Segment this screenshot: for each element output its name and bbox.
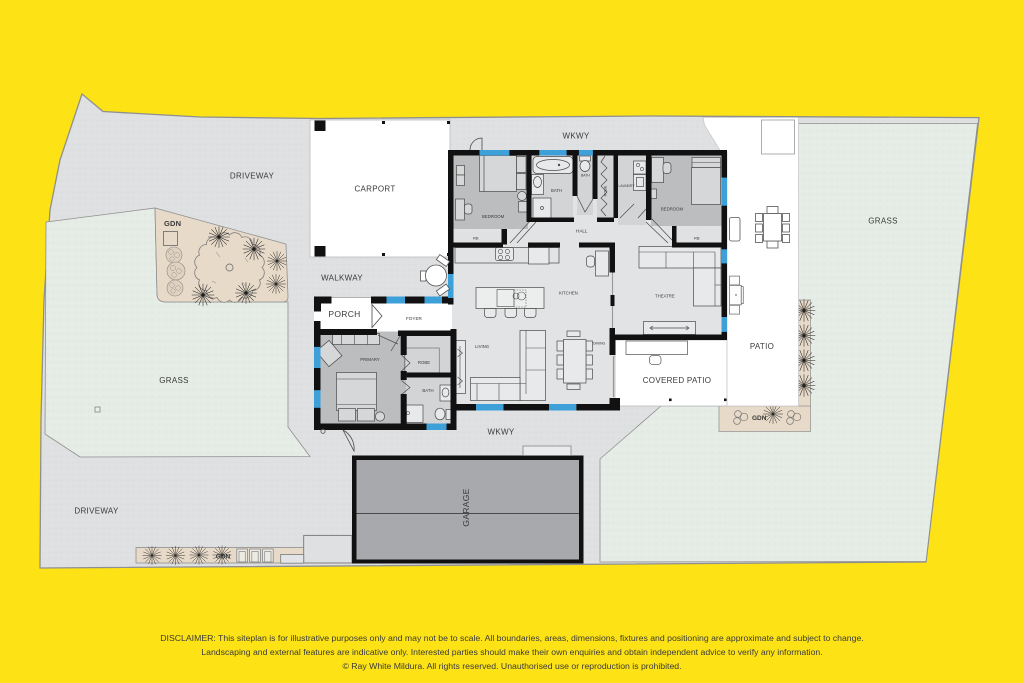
svg-text:GDN: GDN <box>752 415 767 422</box>
svg-text:GDN: GDN <box>164 219 181 228</box>
svg-text:RB: RB <box>694 236 700 241</box>
svg-text:ROBE: ROBE <box>418 360 430 365</box>
svg-text:© Ray White Mildura. All right: © Ray White Mildura. All rights reserved… <box>342 661 681 671</box>
svg-text:GDN: GDN <box>216 554 231 561</box>
svg-text:WKWY: WKWY <box>488 428 515 437</box>
svg-text:PRIMARY: PRIMARY <box>360 357 380 362</box>
svg-text:GRASS: GRASS <box>868 217 898 226</box>
svg-text:WKWY: WKWY <box>563 132 590 141</box>
svg-text:CARPORT: CARPORT <box>354 185 395 194</box>
svg-text:FOYER: FOYER <box>406 316 423 321</box>
svg-text:HALL: HALL <box>576 229 588 234</box>
svg-text:PORCH: PORCH <box>328 309 360 319</box>
svg-text:BEDROOM: BEDROOM <box>661 207 684 212</box>
svg-text:Landscaping and external featu: Landscaping and external features are in… <box>201 647 822 657</box>
svg-text:BATH: BATH <box>581 174 590 178</box>
svg-text:WALKWAY: WALKWAY <box>321 274 363 283</box>
svg-text:BATH: BATH <box>551 188 562 193</box>
svg-text:ROBE: ROBE <box>604 185 608 196</box>
svg-text:KITCHEN: KITCHEN <box>559 291 578 296</box>
svg-text:GRASS: GRASS <box>159 376 189 385</box>
svg-text:PATIO: PATIO <box>750 342 774 351</box>
svg-text:RB: RB <box>473 236 479 241</box>
svg-text:COVERED PATIO: COVERED PATIO <box>643 376 712 385</box>
svg-text:DINING: DINING <box>593 342 606 346</box>
svg-text:LAUNDRY: LAUNDRY <box>619 184 636 188</box>
svg-text:GARAGE: GARAGE <box>461 488 471 526</box>
svg-text:BATH: BATH <box>422 388 433 393</box>
svg-text:BEDROOM: BEDROOM <box>482 214 505 219</box>
svg-text:DRIVEWAY: DRIVEWAY <box>230 172 275 181</box>
svg-text:DISCLAIMER: This siteplan is f: DISCLAIMER: This siteplan is for illustr… <box>160 633 863 643</box>
svg-text:THEATRE: THEATRE <box>655 294 675 299</box>
svg-text:DRIVEWAY: DRIVEWAY <box>74 507 119 516</box>
svg-text:LIVING: LIVING <box>475 344 490 349</box>
